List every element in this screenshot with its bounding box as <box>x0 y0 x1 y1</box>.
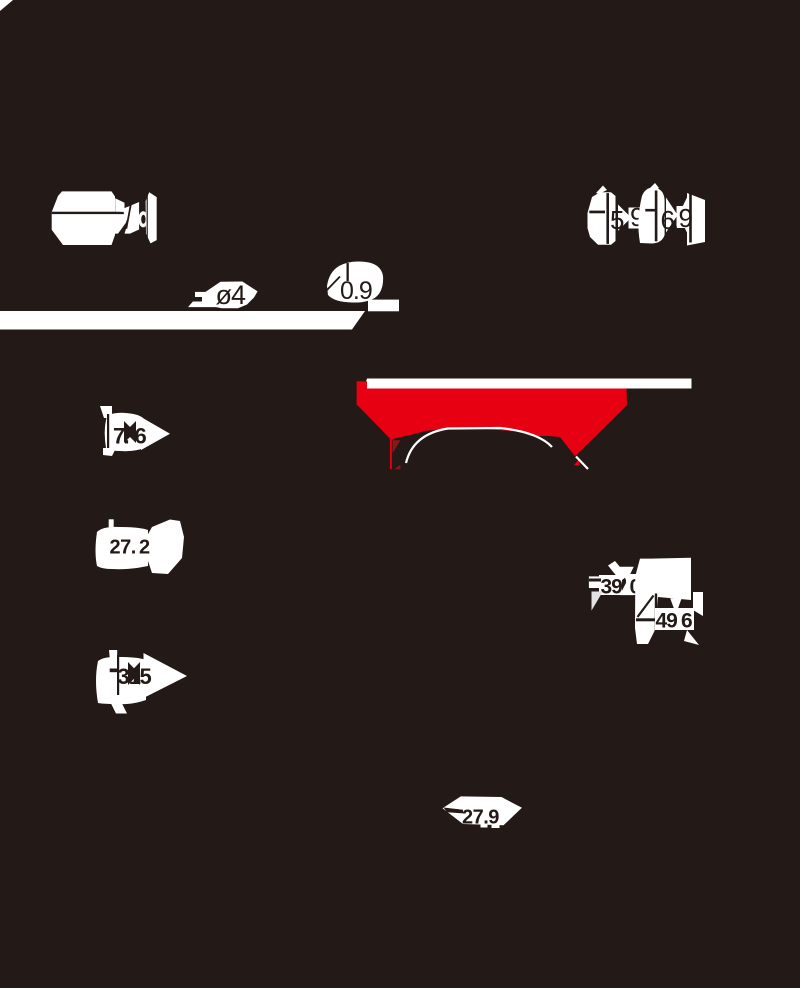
svg-text:.: . <box>622 205 628 235</box>
svg-text:6: 6 <box>681 610 692 633</box>
svg-text:49: 49 <box>656 610 678 633</box>
svg-text:5: 5 <box>140 664 152 689</box>
svg-text:39: 39 <box>601 576 623 599</box>
svg-text:ø4: ø4 <box>216 280 246 310</box>
svg-text:6: 6 <box>135 424 147 449</box>
svg-text:9: 9 <box>679 203 693 233</box>
svg-text:27.9: 27.9 <box>462 807 499 829</box>
svg-text:27.: 27. <box>110 537 136 559</box>
svg-text:2: 2 <box>139 537 150 559</box>
svg-text:.: . <box>672 205 678 235</box>
svg-text:0.9: 0.9 <box>340 277 372 305</box>
